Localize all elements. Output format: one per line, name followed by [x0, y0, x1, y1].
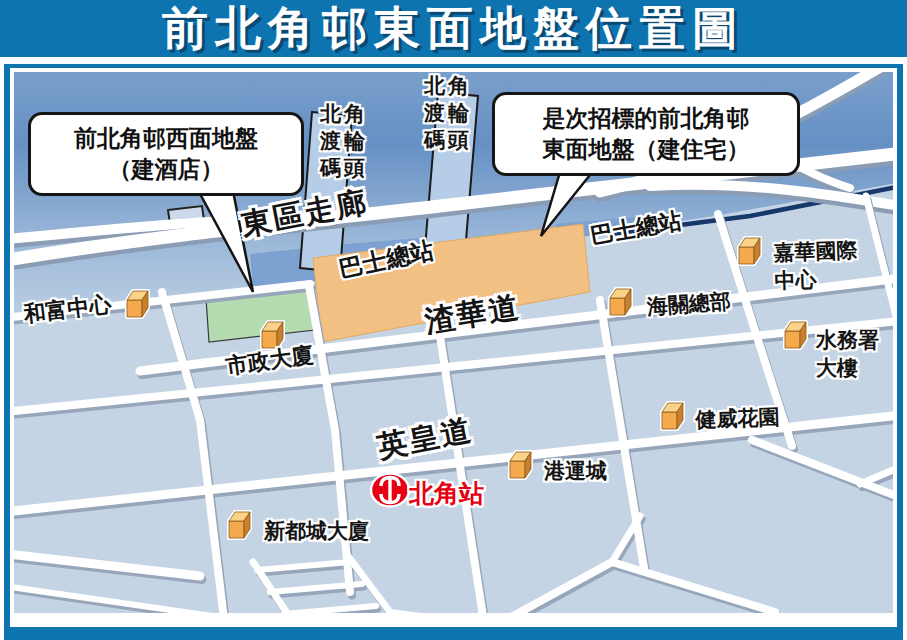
building-icon	[739, 238, 760, 264]
callout-east-line2: 東面地盤（建住宅）	[505, 134, 787, 165]
place-label-line: 中心	[774, 264, 859, 295]
building-icon	[662, 403, 683, 429]
page: { "title": "前北角邨東面地盤位置圖", "callout_west"…	[0, 0, 907, 640]
callout-west-line1: 前北角邨西面地盤	[41, 123, 291, 154]
place-label-line: 大樓	[816, 354, 879, 382]
place-label-healthy-gardens: 健威花園	[695, 403, 780, 434]
building-icon	[785, 322, 806, 348]
bottom-margin	[10, 613, 897, 625]
pier-label-line: 碼頭	[420, 126, 476, 153]
place-label-island-place: 港運城	[544, 457, 607, 485]
callout-west: 前北角邨西面地盤 （建酒店）	[28, 112, 304, 196]
pier-label-line: 渡輪	[420, 99, 476, 126]
pier-label-west: 北角 渡輪 碼頭	[316, 100, 372, 181]
building-icon	[610, 289, 631, 315]
building-icon	[510, 452, 531, 478]
pier-label-line: 碼頭	[316, 154, 372, 181]
place-label-kwah-centre: 嘉華國際 中心	[773, 236, 859, 295]
building-icon	[127, 291, 148, 317]
pier-label-east: 北角 渡輪 碼頭	[420, 72, 476, 153]
place-label-line: 嘉華國際	[773, 236, 858, 267]
place-label-line: 水務署	[816, 326, 879, 354]
place-label-customs-hq: 海關總部	[646, 287, 732, 321]
building-icon	[229, 512, 250, 538]
pier-label-line: 北角	[420, 72, 476, 99]
pier-label-line: 渡輪	[316, 127, 372, 154]
pier-label-line: 北角	[316, 100, 372, 127]
callout-east-line1: 是次招標的前北角邨	[505, 103, 787, 134]
callout-east: 是次招標的前北角邨 東面地盤（建住宅）	[492, 92, 800, 176]
page-title: 前北角邨東面地盤位置圖	[162, 0, 745, 60]
station-label-north-point: 北角站	[409, 477, 484, 510]
callout-west-line2: （建酒店）	[41, 154, 291, 185]
title-banner: 前北角邨東面地盤位置圖	[0, 0, 907, 57]
place-label-metropole-building: 新都城大廈	[264, 517, 369, 545]
place-label-wsd-building: 水務署 大樓	[816, 326, 879, 382]
mtr-logo	[371, 474, 409, 507]
